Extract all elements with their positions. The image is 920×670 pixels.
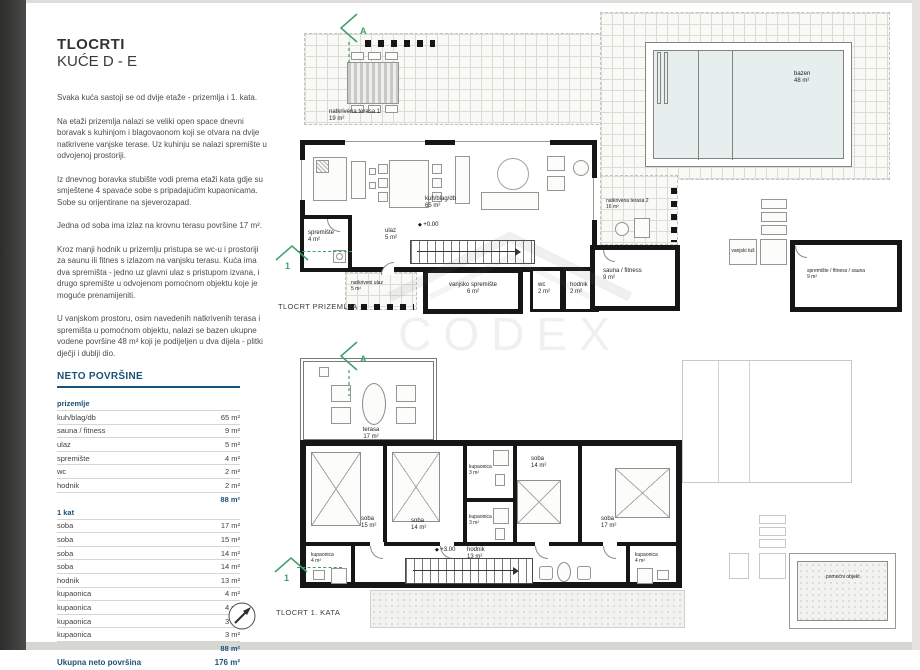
room-label-terasa: terasa 17 m² bbox=[359, 427, 383, 441]
room-label-wc: wc 2 m² bbox=[538, 282, 550, 296]
lounger bbox=[759, 527, 786, 536]
table-row: wc2 m² bbox=[57, 465, 240, 479]
paragraph: Iz dnevnog boravka stubište vodi prema e… bbox=[57, 174, 269, 209]
shower bbox=[493, 450, 509, 466]
armchair bbox=[331, 407, 351, 424]
section-label-prizemlje: prizemlje bbox=[57, 397, 240, 411]
side-table bbox=[573, 160, 589, 176]
chair bbox=[634, 218, 650, 238]
table-row: hodnik2 m² bbox=[57, 479, 240, 493]
pool-water: bazen 48 m² bbox=[653, 50, 844, 159]
photo-edge-right bbox=[912, 0, 920, 650]
window bbox=[591, 178, 597, 220]
sink bbox=[316, 160, 329, 173]
lounger bbox=[761, 199, 787, 209]
window bbox=[345, 139, 425, 145]
room-label-terasa1: natkrivena terasa 1 19 m² bbox=[329, 109, 380, 123]
svg-text:1: 1 bbox=[284, 573, 289, 583]
wall bbox=[626, 546, 630, 588]
first-floor-plan: terasa 17 m² soba 15 m² soba 14 m² kupao… bbox=[285, 340, 910, 640]
lounger bbox=[761, 225, 787, 235]
room-label-hodnik: hodnik 2 m² bbox=[570, 282, 588, 296]
paragraph: Svaka kuća sastoji se od dvije etaže - p… bbox=[57, 92, 269, 104]
table-row: kupaonica3 m² bbox=[57, 615, 240, 629]
armchair bbox=[539, 566, 553, 580]
chair bbox=[432, 178, 442, 188]
room-label-hodnik1k: hodnik 13 m² bbox=[467, 547, 485, 561]
bed bbox=[517, 480, 561, 524]
section-label-1kat: 1 kat bbox=[57, 506, 240, 520]
room-label-soba1: soba 15 m² bbox=[361, 516, 376, 530]
wall bbox=[463, 498, 517, 502]
room-label-kuh: kuh/blag/db 65 m² bbox=[425, 196, 456, 210]
armchair bbox=[396, 407, 416, 424]
lounger bbox=[761, 212, 787, 222]
table-row: kupaonica4 m² bbox=[57, 588, 240, 602]
paragraph: Na etaži prizemlja nalazi se veliki open… bbox=[57, 116, 269, 162]
paragraph: Kroz manji hodnik u prizemlju pristupa s… bbox=[57, 244, 269, 302]
bed bbox=[615, 468, 670, 518]
sofa bbox=[455, 156, 470, 204]
toilet bbox=[495, 528, 505, 540]
bed bbox=[311, 452, 361, 526]
wall bbox=[578, 446, 582, 546]
room-label-soba2: soba 14 m² bbox=[411, 518, 426, 532]
armchair bbox=[547, 176, 565, 191]
table-row: hodnik13 m² bbox=[57, 574, 240, 588]
lounger bbox=[759, 539, 786, 548]
subtotal-1kat: 88 m² bbox=[57, 642, 240, 655]
gravel-roof-below bbox=[370, 590, 685, 628]
chair bbox=[368, 52, 381, 60]
wall bbox=[351, 546, 355, 588]
photo-edge-top bbox=[26, 0, 920, 3]
room-label-spremiste: spremište 4 m² bbox=[308, 230, 334, 244]
armchair bbox=[396, 385, 416, 402]
areas-heading: NETO POVRŠINE bbox=[57, 371, 240, 388]
room-label-kup-left: kupaonica 4 m² bbox=[311, 552, 334, 564]
pomocni-objekt-roof bbox=[797, 561, 888, 621]
first-plan-caption: TLOCRT 1. KATA bbox=[276, 608, 340, 617]
table-row: kupaonica3 m² bbox=[57, 628, 240, 642]
shower bbox=[637, 568, 653, 584]
chair bbox=[378, 178, 388, 188]
outdoor-table bbox=[347, 62, 399, 104]
room-label-kup-top: kupaonica 3 m² bbox=[469, 464, 492, 476]
pool-step bbox=[657, 52, 661, 104]
table-row: soba15 m² bbox=[57, 533, 240, 547]
svg-text:A: A bbox=[360, 354, 367, 364]
pool-frame: bazen 48 m² bbox=[645, 42, 852, 167]
room-label-pomocni-objekt: pomoćni objekt bbox=[826, 574, 860, 580]
room-label-soba4: soba 17 m² bbox=[601, 516, 616, 530]
room-label-kup-right: kupaonica 4 m² bbox=[635, 552, 658, 564]
floorplan-document: { "doc": { "title_line1": "TLOCRTI", "ti… bbox=[0, 0, 920, 650]
stairs-arrow bbox=[513, 567, 519, 575]
svg-text:A: A bbox=[360, 26, 367, 36]
kitchen-island bbox=[351, 161, 366, 199]
pool-step bbox=[664, 52, 668, 104]
patio-square bbox=[759, 553, 786, 579]
svg-text:1: 1 bbox=[285, 261, 290, 271]
sofa bbox=[481, 192, 539, 210]
table-row: ulaz5 m² bbox=[57, 438, 240, 452]
table-row: kuh/blag/db65 m² bbox=[57, 411, 240, 425]
paragraph: U vanjskom prostoru, osim navedenih natk… bbox=[57, 313, 269, 359]
chair bbox=[385, 105, 398, 113]
oval-table bbox=[557, 562, 571, 582]
room-label-terasa2: natkrivena terasa 2 16 m² bbox=[606, 198, 649, 210]
table-row: kupaonica4 m² bbox=[57, 601, 240, 615]
pool-divider bbox=[698, 51, 699, 160]
room-label-bazen: bazen 48 m² bbox=[794, 71, 810, 85]
bed bbox=[392, 452, 440, 522]
room-label-pomocni: spremište / fitness / sauna 9 m² bbox=[807, 268, 865, 280]
page-title: TLOCRTI bbox=[57, 36, 269, 53]
room-label-natkriveni-ulaz: natkriveni ulaz 5 m² bbox=[351, 280, 383, 292]
paragraph: Jedna od soba ima izlaz na krovnu terasu… bbox=[57, 220, 269, 232]
shower bbox=[331, 568, 347, 584]
section-line bbox=[297, 251, 352, 252]
room-label-sauna: sauna / fitness 9 m² bbox=[603, 268, 642, 282]
dining-table bbox=[389, 160, 429, 208]
section-line bbox=[297, 567, 342, 568]
room-label-kup-mid: kupaonica 3 m² bbox=[469, 514, 492, 526]
wall bbox=[306, 542, 676, 546]
chair bbox=[378, 164, 388, 174]
pomocni-objekt-outline: pomoćni objekt bbox=[789, 553, 896, 629]
armchair bbox=[547, 156, 565, 171]
chair bbox=[432, 164, 442, 174]
page-subtitle: KUĆE D - E bbox=[57, 53, 269, 70]
entry-dash-edge bbox=[348, 304, 414, 310]
stairs-arrow bbox=[515, 248, 521, 256]
shower bbox=[493, 508, 509, 524]
sink bbox=[313, 570, 325, 580]
room-label-soba3: soba 14 m² bbox=[531, 456, 546, 470]
table-row: sauna / fitness9 m² bbox=[57, 425, 240, 439]
planter bbox=[319, 367, 329, 377]
ground-floor-plan: natkrivena terasa 1 19 m² bazen 48 m² bbox=[285, 10, 910, 335]
pool-divider bbox=[718, 361, 719, 482]
terrace2-dash-edge bbox=[671, 188, 677, 242]
elevation-marker: +3.00 bbox=[435, 547, 455, 553]
stool bbox=[369, 168, 376, 175]
section-marker-a: A bbox=[335, 12, 369, 68]
washing-machine-drum bbox=[336, 253, 343, 260]
window bbox=[299, 160, 305, 200]
total-row: Ukupna neto površina176 m² bbox=[57, 655, 240, 670]
pergola-beam bbox=[365, 40, 435, 47]
elevation-marker: +0.00 bbox=[418, 222, 438, 228]
table-row: soba17 m² bbox=[57, 520, 240, 534]
stairs-direction-line bbox=[417, 251, 515, 252]
areas-table: NETO POVRŠINE prizemlje kuh/blag/db65 m²… bbox=[57, 371, 240, 670]
table-row: spremište4 m² bbox=[57, 452, 240, 466]
chair bbox=[615, 222, 629, 236]
room-label-ulaz: ulaz 5 m² bbox=[385, 228, 397, 242]
subtotal-prizemlje: 88 m² bbox=[57, 493, 240, 506]
lounger bbox=[759, 515, 786, 524]
sink bbox=[657, 570, 669, 580]
chair bbox=[378, 192, 388, 202]
window bbox=[455, 139, 550, 145]
ground-plan-caption: TLOCRT PRIZEMLJA bbox=[278, 302, 357, 311]
table-row: soba14 m² bbox=[57, 547, 240, 561]
pool-divider bbox=[732, 51, 733, 160]
outdoor-shower: vanjski tuš bbox=[729, 239, 757, 265]
wall bbox=[383, 446, 387, 546]
room-label-vanjsko-spremiste: vanjsko spremište 6 m² bbox=[437, 282, 509, 296]
wall bbox=[463, 446, 467, 546]
photo-edge-left bbox=[0, 0, 26, 650]
stairs-direction-line bbox=[413, 570, 513, 571]
info-column: TLOCRTI KUĆE D - E Svaka kuća sastoji se… bbox=[57, 36, 269, 670]
pool-divider bbox=[749, 361, 750, 482]
armchair bbox=[577, 566, 591, 580]
section-marker-a: A bbox=[335, 340, 369, 400]
pool-outline-below bbox=[682, 360, 852, 483]
chair bbox=[385, 52, 398, 60]
compass-icon bbox=[226, 600, 258, 632]
toilet bbox=[495, 474, 505, 486]
patio-square bbox=[760, 239, 787, 265]
rug bbox=[497, 158, 529, 190]
table-row: soba14 m² bbox=[57, 560, 240, 574]
stool bbox=[369, 182, 376, 189]
patio-square bbox=[729, 553, 749, 579]
